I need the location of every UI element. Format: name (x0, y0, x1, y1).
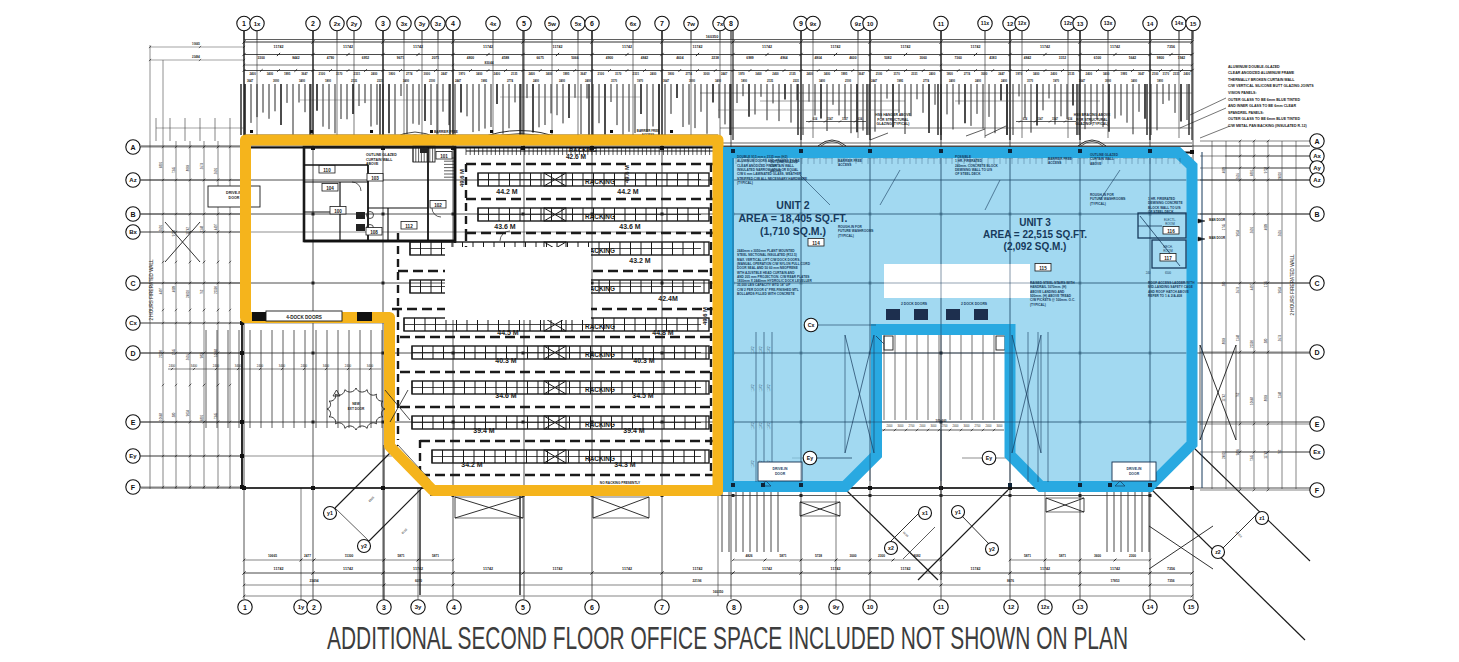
svg-text:11742: 11742 (483, 567, 493, 571)
svg-text:2400: 2400 (772, 72, 779, 76)
svg-text:34.6 M: 34.6 M (495, 392, 517, 399)
svg-text:2400: 2400 (371, 72, 378, 76)
svg-text:101: 101 (440, 154, 448, 159)
svg-text:5066: 5066 (571, 56, 579, 60)
svg-text:RACKING: RACKING (585, 421, 615, 428)
svg-text:7345: 7345 (172, 166, 176, 173)
svg-text:1970: 1970 (459, 72, 466, 76)
svg-text:2 HOURS FIRERATED WALL: 2 HOURS FIRERATED WALL (149, 259, 154, 320)
svg-text:ABOVE: ABOVE (366, 162, 379, 166)
svg-text:3400: 3400 (323, 364, 330, 368)
svg-text:10: 10 (867, 21, 874, 27)
svg-text:11742: 11742 (831, 567, 841, 571)
svg-text:RACKING: RACKING (585, 386, 615, 393)
svg-text:2300: 2300 (1129, 554, 1136, 558)
svg-text:2774: 2774 (923, 79, 930, 83)
svg-text:E: E (1315, 421, 1320, 428)
svg-text:5871: 5871 (397, 554, 404, 558)
svg-text:HSS HANGER ABOVE: HSS HANGER ABOVE (875, 113, 911, 117)
svg-text:4497: 4497 (214, 223, 218, 230)
svg-text:x1: x1 (922, 510, 928, 516)
svg-text:(TYPICAL): (TYPICAL) (1030, 303, 1046, 307)
svg-text:9758: 9758 (1264, 166, 1268, 173)
svg-text:11742: 11742 (751, 384, 755, 392)
svg-text:4790: 4790 (327, 56, 335, 60)
svg-text:FOR STRUCTURAL: FOR STRUCTURAL (877, 118, 908, 122)
svg-text:RACKING: RACKING (585, 323, 615, 330)
svg-text:3000: 3000 (981, 72, 988, 76)
svg-text:44.8 M: 44.8 M (652, 329, 674, 336)
svg-text:6100: 6100 (1094, 56, 1102, 60)
svg-text:13x: 13x (1104, 20, 1113, 26)
svg-text:1800: 1800 (741, 79, 748, 83)
svg-text:44.2 M: 44.2 M (496, 188, 518, 195)
svg-text:3400: 3400 (755, 72, 762, 76)
svg-text:11742: 11742 (759, 384, 763, 392)
svg-text:F: F (131, 484, 136, 491)
svg-text:Cx: Cx (129, 320, 137, 326)
svg-text:SPANDREL PANELS:: SPANDREL PANELS: (1228, 111, 1264, 115)
svg-text:D: D (130, 350, 135, 357)
svg-text:11742: 11742 (1040, 45, 1050, 49)
svg-text:5871: 5871 (1059, 554, 1066, 558)
svg-text:(2,092 SQ.M.): (2,092 SQ.M.) (1004, 241, 1067, 252)
svg-text:3170: 3170 (893, 72, 900, 76)
svg-text:2447: 2447 (455, 79, 462, 83)
svg-text:24010: 24010 (1278, 172, 1282, 180)
svg-text:OF STEEL DECK: OF STEEL DECK (955, 172, 981, 176)
svg-text:3y: 3y (415, 604, 422, 610)
svg-text:3000: 3000 (1105, 79, 1112, 83)
svg-text:34.2 M: 34.2 M (461, 461, 483, 468)
svg-text:5691: 5691 (159, 224, 163, 231)
svg-text:UNIT 2: UNIT 2 (776, 199, 809, 211)
svg-text:11742: 11742 (767, 346, 771, 354)
svg-text:DOOR: DOOR (1129, 472, 1140, 476)
svg-text:EXT DOOR: EXT DOOR (348, 407, 365, 411)
svg-text:34.3 M: 34.3 M (614, 461, 636, 468)
svg-text:THERMALLY BROKEN CURTAIN WALL: THERMALLY BROKEN CURTAIN WALL (1228, 78, 1295, 82)
svg-text:RACKING: RACKING (585, 351, 615, 358)
svg-text:RACKING: RACKING (585, 213, 615, 220)
svg-text:2400: 2400 (953, 424, 959, 428)
svg-text:y2: y2 (989, 546, 995, 552)
svg-text:44.2 M: 44.2 M (617, 188, 639, 195)
svg-text:11742: 11742 (759, 346, 763, 354)
svg-text:2774: 2774 (685, 72, 692, 76)
svg-text:3400: 3400 (476, 72, 483, 76)
svg-text:2700: 2700 (975, 424, 981, 428)
svg-text:112: 112 (405, 224, 413, 229)
svg-text:23494: 23494 (310, 579, 319, 583)
svg-text:Bx: Bx (129, 229, 137, 235)
svg-text:1942: 1942 (1178, 56, 1186, 60)
svg-text:5691: 5691 (1250, 226, 1254, 233)
svg-text:ABOVE: ABOVE (1090, 162, 1101, 166)
svg-text:A: A (130, 144, 135, 151)
svg-text:2100: 2100 (598, 72, 605, 76)
svg-text:2774: 2774 (507, 79, 514, 83)
svg-text:GLAZING (TYPICAL): GLAZING (TYPICAL) (877, 122, 910, 126)
svg-text:C/W VERTICAL SILICONE BUTT GLA: C/W VERTICAL SILICONE BUTT GLAZING JOINT… (1228, 84, 1314, 88)
svg-text:REFER TO 1 & 2/A-408: REFER TO 1 & 2/A-408 (1148, 294, 1182, 298)
svg-text:380: 380 (1222, 281, 1226, 286)
svg-text:4842: 4842 (641, 56, 649, 60)
svg-text:15: 15 (1188, 604, 1195, 610)
svg-text:2400: 2400 (494, 72, 501, 76)
svg-text:2135: 2135 (1068, 72, 1075, 76)
svg-text:5x: 5x (575, 21, 582, 27)
svg-text:42.4M: 42.4M (658, 295, 678, 302)
svg-text:3: 3 (382, 604, 386, 611)
svg-text:14: 14 (1147, 21, 1154, 27)
svg-text:3x: 3x (401, 21, 408, 27)
svg-text:3400: 3400 (279, 364, 286, 368)
svg-text:11742: 11742 (751, 346, 755, 354)
svg-text:3000: 3000 (273, 79, 280, 83)
svg-text:(1,710 SQ.M.): (1,710 SQ.M.) (760, 225, 826, 237)
svg-text:2135: 2135 (767, 79, 774, 83)
svg-text:GLAZING (TYPICAL): GLAZING (TYPICAL) (1076, 122, 1109, 126)
svg-text:9: 9 (799, 20, 803, 27)
svg-text:9z: 9z (855, 21, 861, 27)
svg-text:11742: 11742 (413, 567, 423, 571)
svg-text:6801: 6801 (1250, 169, 1254, 176)
svg-text:5w: 5w (548, 21, 556, 27)
svg-text:22196: 22196 (693, 579, 702, 583)
svg-text:1148: 1148 (1278, 392, 1282, 398)
svg-text:3400: 3400 (1103, 72, 1110, 76)
svg-text:11742: 11742 (762, 567, 772, 571)
svg-text:11742: 11742 (831, 45, 841, 49)
svg-text:3347: 3347 (1052, 117, 1058, 121)
svg-text:2331: 2331 (911, 72, 918, 76)
svg-text:11742: 11742 (1110, 45, 1120, 49)
svg-text:1800: 1800 (946, 72, 953, 76)
svg-text:21590: 21590 (159, 350, 163, 358)
svg-text:2331: 2331 (1173, 72, 1180, 76)
svg-text:(TYPICAL): (TYPICAL) (1090, 202, 1106, 206)
svg-text:2447: 2447 (998, 72, 1005, 76)
svg-text:2400: 2400 (1086, 72, 1093, 76)
svg-text:2400: 2400 (533, 79, 540, 83)
svg-text:3170: 3170 (336, 72, 343, 76)
svg-text:AREA = 22,515 SQ.FT.: AREA = 22,515 SQ.FT. (983, 229, 1087, 240)
svg-text:DOOR: DOOR (229, 196, 240, 200)
svg-text:11742: 11742 (186, 227, 190, 235)
svg-text:11742: 11742 (971, 45, 981, 49)
svg-text:NEW: NEW (352, 402, 359, 406)
svg-text:7356: 7356 (1167, 45, 1175, 49)
svg-text:3000: 3000 (689, 79, 696, 83)
svg-text:BOLLARDS FILLED WITH CONCRETE: BOLLARDS FILLED WITH CONCRETE (737, 292, 795, 296)
svg-text:ACCESS: ACCESS (1048, 161, 1061, 165)
svg-text:116: 116 (1167, 229, 1175, 234)
svg-text:3400: 3400 (403, 79, 410, 83)
svg-text:15: 15 (1190, 21, 1197, 27)
svg-text:2300: 2300 (878, 554, 885, 558)
svg-text:2400: 2400 (169, 364, 176, 368)
svg-text:3600: 3600 (1094, 554, 1101, 558)
svg-text:380: 380 (1264, 338, 1268, 343)
svg-text:17853: 17853 (1111, 579, 1120, 583)
svg-text:2400: 2400 (345, 364, 352, 368)
svg-text:3400: 3400 (546, 72, 553, 76)
svg-text:Cx: Cx (808, 322, 815, 328)
svg-text:2x: 2x (334, 21, 341, 27)
svg-text:1x: 1x (254, 21, 261, 27)
svg-text:634: 634 (1068, 117, 1073, 121)
svg-text:1970: 1970 (1016, 72, 1023, 76)
svg-text:2400: 2400 (528, 72, 535, 76)
svg-text:2 HOURS FIRERATED WALL: 2 HOURS FIRERATED WALL (1290, 254, 1295, 315)
svg-text:3170: 3170 (615, 72, 622, 76)
svg-text:9034: 9034 (1236, 229, 1240, 236)
svg-text:5: 5 (522, 20, 526, 27)
svg-text:2400: 2400 (986, 424, 992, 428)
svg-text:5616: 5616 (1278, 229, 1282, 236)
svg-text:11742: 11742 (274, 45, 284, 49)
svg-text:34.5 M: 34.5 M (632, 392, 654, 399)
svg-text:103: 103 (371, 176, 379, 181)
svg-text:2400: 2400 (1051, 72, 1058, 76)
svg-text:3312: 3312 (1059, 56, 1067, 60)
svg-text:762: 762 (200, 289, 204, 294)
svg-text:6675: 6675 (537, 56, 545, 60)
svg-text:8442: 8442 (292, 56, 300, 60)
svg-text:11742: 11742 (622, 567, 632, 571)
svg-text:3400: 3400 (1131, 79, 1138, 83)
svg-text:1995: 1995 (841, 72, 848, 76)
svg-text:2400: 2400 (920, 424, 926, 428)
svg-text:117: 117 (1164, 256, 1172, 261)
svg-text:MAN DOOR: MAN DOOR (1209, 236, 1226, 240)
svg-text:11: 11 (938, 21, 945, 27)
svg-text:2400: 2400 (1184, 72, 1191, 76)
svg-text:C/W METAL PAN BACKING (INSULAT: C/W METAL PAN BACKING (INSULATED R-12) (1228, 124, 1307, 128)
svg-text:2400: 2400 (559, 79, 566, 83)
svg-text:DRIVE-IN: DRIVE-IN (1127, 467, 1142, 471)
svg-text:2400: 2400 (213, 364, 220, 368)
svg-text:3400: 3400 (997, 424, 1003, 428)
svg-text:3400: 3400 (964, 424, 970, 428)
svg-text:2: 2 (311, 20, 315, 27)
svg-text:5674: 5674 (200, 162, 204, 169)
svg-text:11742: 11742 (274, 567, 284, 571)
svg-text:5728: 5728 (815, 554, 822, 558)
svg-text:11742: 11742 (971, 567, 981, 571)
svg-text:Ex: Ex (1313, 449, 1321, 455)
svg-text:3400: 3400 (1033, 72, 1040, 76)
svg-text:11742: 11742 (767, 422, 771, 430)
svg-text:11742: 11742 (762, 45, 772, 49)
svg-text:9: 9 (799, 604, 803, 611)
svg-text:9836: 9836 (200, 351, 204, 358)
svg-text:2400: 2400 (975, 79, 982, 83)
svg-text:4900: 4900 (606, 56, 614, 60)
svg-text:1800: 1800 (325, 79, 332, 83)
svg-text:11742: 11742 (751, 460, 755, 468)
svg-text:11742: 11742 (901, 45, 911, 49)
svg-text:3400: 3400 (367, 364, 374, 368)
svg-text:2400: 2400 (249, 72, 256, 76)
svg-text:Ay: Ay (1313, 165, 1321, 171)
svg-text:C: C (130, 280, 135, 287)
svg-text:6801: 6801 (159, 161, 163, 168)
svg-text:11742: 11742 (751, 422, 755, 430)
svg-text:7345: 7345 (1250, 454, 1254, 461)
svg-text:z1: z1 (1259, 515, 1265, 521)
svg-text:x2: x2 (888, 545, 894, 551)
svg-text:8676: 8676 (1007, 579, 1014, 583)
svg-text:2774: 2774 (964, 72, 971, 76)
svg-text:OUTER GLASS TO BE 6mm BLUE TIN: OUTER GLASS TO BE 6mm BLUE TINTED (1228, 117, 1300, 121)
svg-text:AND INNER GLASS TO BE 6mm CLEA: AND INNER GLASS TO BE 6mm CLEAR (1228, 104, 1296, 108)
svg-text:102: 102 (434, 203, 442, 208)
svg-text:3347: 3347 (842, 117, 848, 121)
svg-text:2477: 2477 (304, 554, 311, 558)
svg-text:3y: 3y (419, 21, 426, 27)
svg-text:6801: 6801 (200, 414, 204, 421)
svg-text:3170: 3170 (1163, 72, 1170, 76)
svg-text:3060: 3060 (920, 56, 928, 60)
svg-text:11742: 11742 (413, 45, 423, 49)
svg-text:4: 4 (451, 20, 455, 27)
svg-text:634: 634 (813, 117, 818, 121)
svg-text:8069: 8069 (186, 164, 190, 171)
svg-text:5871: 5871 (432, 554, 439, 558)
svg-text:2: 2 (312, 604, 316, 611)
svg-text:Ey: Ey (129, 453, 137, 459)
svg-text:7w: 7w (687, 21, 695, 27)
svg-text:9034: 9034 (186, 409, 190, 416)
svg-text:1800: 1800 (1157, 79, 1164, 83)
svg-text:6x: 6x (630, 21, 637, 27)
svg-text:4089: 4089 (1222, 166, 1226, 173)
svg-text:9y: 9y (833, 604, 840, 610)
svg-text:2400: 2400 (257, 364, 264, 368)
svg-text:5642: 5642 (1129, 56, 1137, 60)
svg-text:6: 6 (590, 20, 594, 27)
svg-text:23494: 23494 (192, 55, 200, 59)
svg-text:3: 3 (381, 20, 385, 27)
svg-text:F: F (1315, 487, 1320, 494)
svg-text:160350: 160350 (706, 35, 719, 39)
svg-text:3170: 3170 (611, 79, 618, 83)
svg-text:114: 114 (812, 241, 820, 246)
svg-text:21590: 21590 (1250, 340, 1254, 348)
svg-text:3347: 3347 (827, 117, 833, 121)
svg-text:Az: Az (1313, 177, 1320, 183)
svg-text:RACKING: RACKING (585, 178, 615, 185)
svg-text:13: 13 (1077, 21, 1084, 27)
svg-text:11742: 11742 (553, 567, 563, 571)
svg-text:83044: 83044 (485, 61, 494, 65)
svg-text:3400: 3400 (898, 424, 904, 428)
svg-text:2400: 2400 (887, 424, 893, 428)
svg-text:C: C (1314, 280, 1319, 287)
svg-text:3400: 3400 (715, 79, 722, 83)
svg-text:44.5 M: 44.5 M (497, 329, 519, 336)
svg-text:21590: 21590 (214, 286, 218, 294)
svg-text:24010: 24010 (186, 290, 190, 298)
svg-text:108: 108 (370, 230, 378, 235)
svg-text:11300: 11300 (345, 554, 354, 558)
svg-text:1970: 1970 (1053, 79, 1060, 83)
svg-text:40.3 M: 40.3 M (633, 357, 655, 364)
svg-text:100: 100 (334, 209, 342, 214)
svg-text:1970: 1970 (637, 79, 644, 83)
svg-text:4600: 4600 (849, 56, 857, 60)
svg-text:2135: 2135 (511, 72, 518, 76)
svg-text:4089: 4089 (172, 285, 176, 292)
svg-text:5691: 5691 (214, 167, 218, 174)
svg-text:HSS BRACING ABOVE: HSS BRACING ABOVE (1074, 113, 1111, 117)
svg-text:7360: 7360 (955, 56, 963, 60)
svg-text:2774: 2774 (406, 72, 413, 76)
svg-text:1800: 1800 (389, 72, 396, 76)
svg-text:10: 10 (867, 604, 874, 610)
svg-text:6070: 6070 (415, 579, 422, 583)
svg-text:1148: 1148 (1236, 335, 1240, 341)
svg-text:2400: 2400 (301, 364, 308, 368)
svg-text:8069: 8069 (1222, 337, 1226, 344)
svg-text:634: 634 (858, 117, 863, 121)
svg-text:4383: 4383 (989, 56, 997, 60)
svg-text:1745: 1745 (1222, 223, 1226, 230)
svg-text:4x: 4x (490, 21, 497, 27)
svg-text:10668: 10668 (1250, 397, 1254, 405)
svg-text:8: 8 (732, 604, 736, 611)
svg-text:y2: y2 (361, 543, 367, 549)
svg-text:B: B (1314, 211, 1319, 218)
svg-text:115: 115 (1039, 266, 1047, 271)
svg-text:1995: 1995 (563, 72, 570, 76)
svg-text:1995: 1995 (897, 79, 904, 83)
svg-text:4497: 4497 (159, 287, 163, 294)
svg-text:9034: 9034 (1278, 286, 1282, 293)
svg-text:B: B (130, 211, 135, 218)
svg-text:2447: 2447 (871, 79, 878, 83)
svg-text:5674: 5674 (1278, 334, 1282, 341)
svg-text:Az: Az (129, 177, 136, 183)
svg-text:39.4 M: 39.4 M (623, 427, 645, 434)
svg-text:3647: 3647 (1138, 72, 1145, 76)
svg-text:11742: 11742 (759, 422, 763, 430)
svg-text:1: 1 (242, 20, 246, 27)
svg-text:1: 1 (243, 604, 247, 611)
svg-text:11742: 11742 (693, 567, 703, 571)
svg-text:5871: 5871 (1024, 554, 1031, 558)
svg-text:2400: 2400 (585, 79, 592, 83)
svg-text:6500: 6500 (1165, 271, 1172, 275)
svg-text:2400: 2400 (929, 72, 936, 76)
svg-text:6952: 6952 (362, 56, 370, 60)
svg-text:4-DOCK DOORS: 4-DOCK DOORS (286, 315, 322, 320)
svg-text:4497: 4497 (1250, 283, 1254, 290)
svg-text:11x: 11x (981, 20, 989, 26)
svg-text:DRIVE-IN: DRIVE-IN (226, 191, 242, 195)
svg-text:12: 12 (1008, 604, 1015, 610)
svg-text:NO RACKING PRESENTLY: NO RACKING PRESENTLY (600, 481, 641, 485)
svg-text:(TYPICAL): (TYPICAL) (737, 181, 753, 185)
svg-text:z2: z2 (1215, 549, 1221, 555)
svg-text:2135: 2135 (351, 79, 358, 83)
svg-text:11742: 11742 (901, 567, 911, 571)
svg-text:4: 4 (452, 604, 456, 611)
svg-text:6989: 6989 (746, 56, 754, 60)
svg-text:3400: 3400 (267, 72, 274, 76)
